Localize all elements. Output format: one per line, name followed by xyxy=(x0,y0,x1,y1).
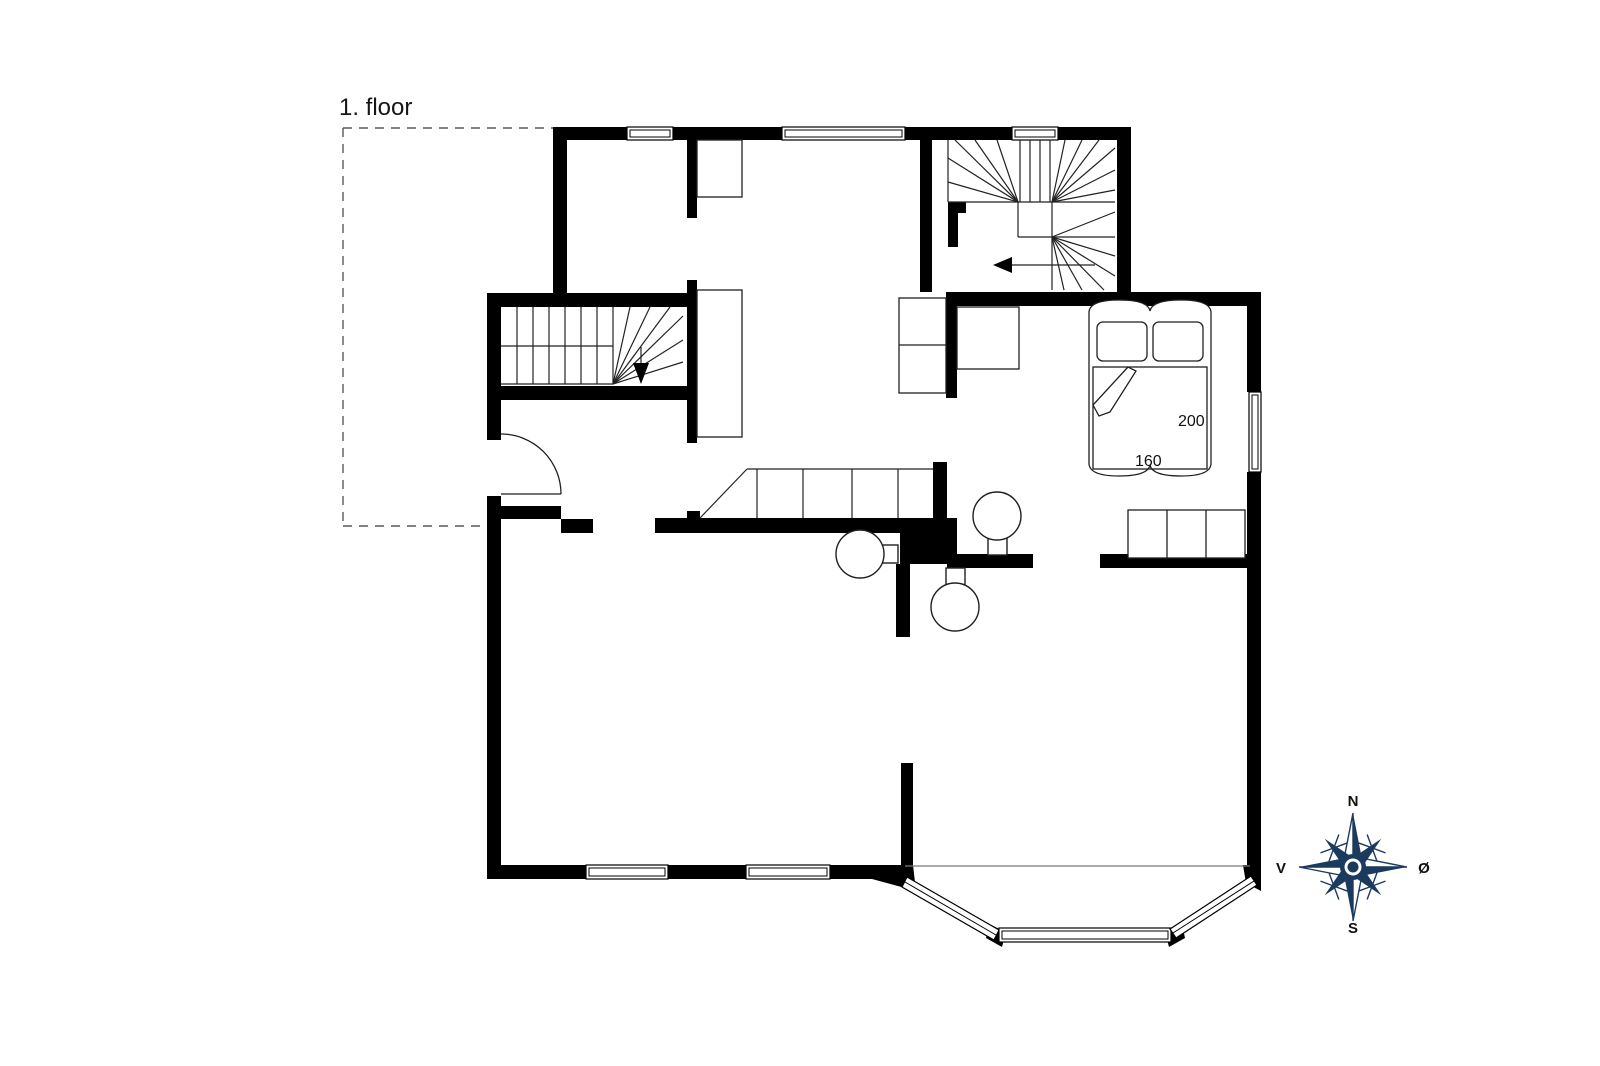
wash-basin-living xyxy=(931,568,979,631)
pillow-left xyxy=(1097,322,1147,361)
window-right xyxy=(1249,392,1261,472)
floor-plan-drawing: 1. floor xyxy=(0,0,1600,1066)
compass-north-label: N xyxy=(1348,793,1359,810)
cabinet-upper-room xyxy=(697,140,742,197)
floor-label: 1. floor xyxy=(339,94,412,121)
compass-east-label: Ø xyxy=(1418,860,1430,877)
staircase-winder xyxy=(948,140,1115,290)
cabinet-hall-double xyxy=(899,298,946,393)
cabinet-hall-tall xyxy=(697,290,742,437)
staircase-left xyxy=(501,307,683,384)
wash-basin-bedroom xyxy=(973,492,1021,555)
bed-width-label: 160 xyxy=(1135,453,1162,470)
cabinet-bedroom xyxy=(957,307,1019,369)
compass-graphic xyxy=(1299,813,1407,921)
closet-right-room xyxy=(1128,510,1245,558)
window-top-3 xyxy=(1012,127,1058,140)
window-top-1 xyxy=(627,127,673,140)
floor-plan-page: 1. floor xyxy=(0,0,1600,1066)
dashed-outline xyxy=(343,128,553,526)
entry-door xyxy=(501,434,561,494)
window-top-2 xyxy=(782,127,905,140)
pillow-right xyxy=(1153,322,1203,361)
staircase-lower xyxy=(700,469,933,518)
wash-basin-hall xyxy=(836,530,898,578)
bay-window xyxy=(902,866,1257,942)
double-bed: 200 160 xyxy=(1089,300,1211,476)
window-bottom-2 xyxy=(746,865,830,879)
bed-length-label: 200 xyxy=(1178,413,1205,430)
stair-direction-arrow xyxy=(993,257,1012,273)
compass-rose: N Ø S V xyxy=(1276,793,1430,937)
window-bottom-1 xyxy=(586,865,668,879)
compass-south-label: S xyxy=(1348,920,1358,937)
compass-west-label: V xyxy=(1276,860,1286,877)
